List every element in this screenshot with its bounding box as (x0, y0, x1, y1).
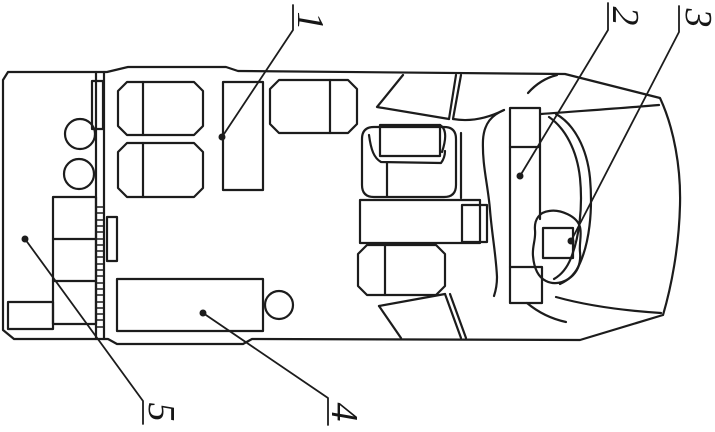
leader-dot-3 (568, 238, 573, 243)
stretcher (117, 279, 263, 331)
lower-seat (358, 245, 445, 295)
stretcher-pillow (265, 291, 293, 319)
door-step-left-edge (379, 306, 401, 338)
equipment-console-end-box (462, 205, 487, 242)
partition-door-panel (92, 81, 103, 129)
cab-partition-edge (483, 110, 504, 296)
cabinet-column (53, 197, 96, 324)
round-stool-2 (64, 159, 94, 189)
leader-line-3 (571, 6, 679, 241)
single-seat (270, 80, 357, 133)
leader-dot-5 (22, 236, 27, 241)
medical-cabin (117, 80, 487, 331)
leader-dot-4 (200, 310, 205, 315)
side-door-frame (377, 75, 504, 338)
wall-rail (107, 217, 117, 261)
double-seat-2 (118, 143, 203, 197)
leader-line-4 (203, 313, 328, 425)
cab-console-window (510, 108, 540, 147)
vehicle-top-view-drawing (0, 0, 715, 429)
rear-compartment (8, 72, 117, 339)
attendant-seat-backrest (380, 125, 440, 156)
cab-roof-corner-line (528, 75, 557, 93)
double-seat-1 (118, 82, 203, 135)
callout-label-1: 1 (290, 1, 330, 41)
round-stool-1 (65, 119, 95, 149)
table (223, 82, 263, 190)
door-pillar-upper (377, 75, 449, 119)
rear-corner-cabinet (8, 302, 53, 329)
callout-label-5: 5 (141, 392, 181, 432)
callout-label-2: 2 (605, 0, 645, 36)
front-rocker-line (556, 297, 661, 313)
leader-dot-1 (219, 134, 224, 139)
leader-line-2 (520, 3, 608, 176)
callout-label-3: 3 (678, 0, 715, 38)
callout-label-4: 4 (324, 392, 364, 432)
front-wheel-arch-line (527, 303, 566, 322)
partition-hatch-rungs (96, 207, 104, 327)
dashboard-arc-inner (549, 117, 581, 279)
leader-dot-2 (517, 173, 522, 178)
